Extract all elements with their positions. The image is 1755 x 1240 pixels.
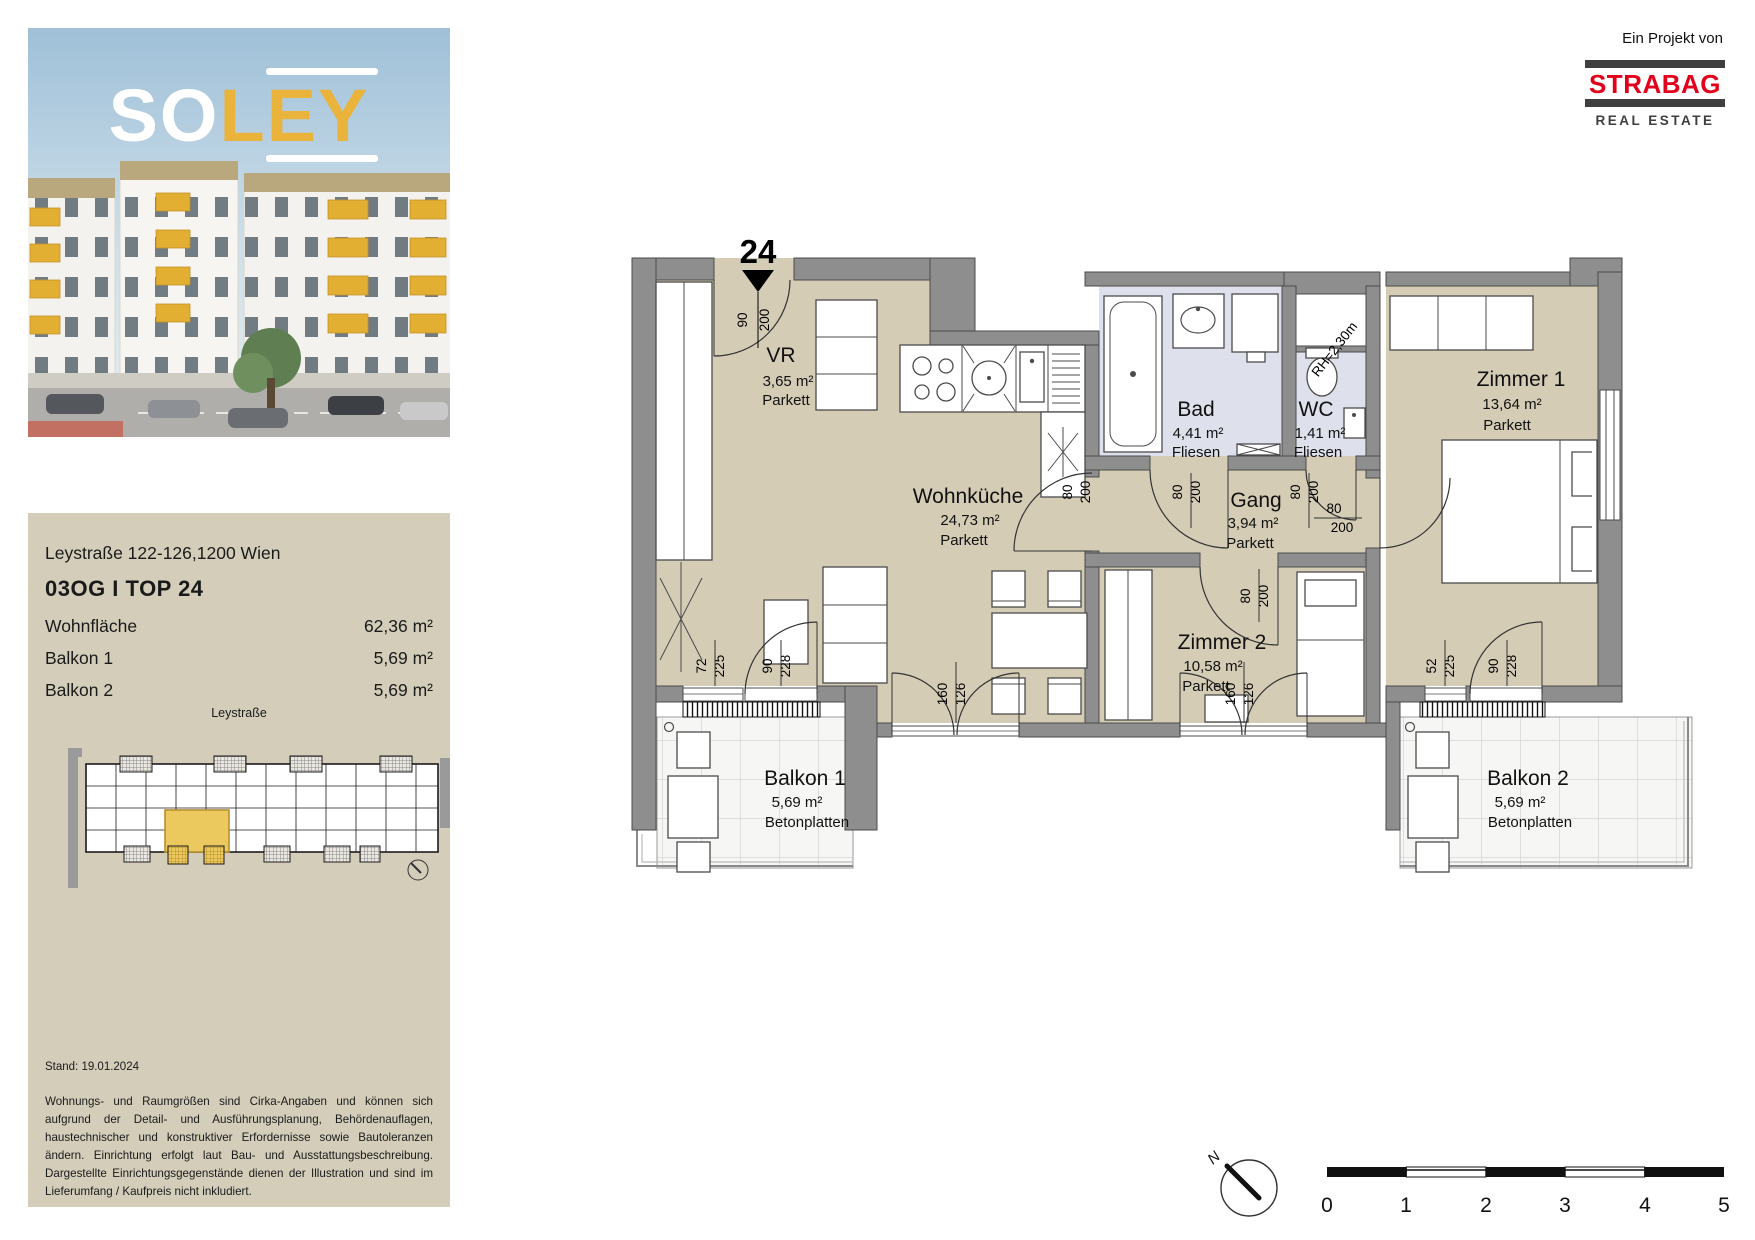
svg-text:Balkon 2: Balkon 2 — [1487, 767, 1569, 790]
svg-text:72: 72 — [694, 658, 709, 673]
svg-text:225: 225 — [1442, 655, 1457, 678]
svg-text:0: 0 — [1321, 1194, 1333, 1217]
svg-text:13,64 m²: 13,64 m² — [1482, 396, 1541, 413]
svg-text:Fliesen: Fliesen — [1172, 444, 1220, 461]
z1-wardrobe — [1390, 296, 1533, 350]
svg-text:200: 200 — [1078, 481, 1093, 504]
chair — [1048, 678, 1081, 714]
svg-text:4,41 m²: 4,41 m² — [1173, 425, 1224, 442]
svg-text:160: 160 — [1223, 683, 1238, 706]
balkon1-threshold — [683, 702, 820, 717]
scale-bar: 0 1 2 3 4 5 — [1321, 1167, 1730, 1217]
svg-text:3,94 m²: 3,94 m² — [1228, 515, 1279, 532]
svg-text:Wohnküche: Wohnküche — [913, 485, 1024, 508]
svg-text:1: 1 — [1400, 1194, 1412, 1217]
svg-text:52: 52 — [1424, 658, 1439, 673]
bad-radiator — [1237, 444, 1280, 455]
svg-text:4: 4 — [1639, 1194, 1651, 1217]
svg-text:228: 228 — [778, 655, 793, 678]
svg-text:2: 2 — [1480, 1194, 1492, 1217]
svg-text:80: 80 — [1238, 588, 1253, 603]
svg-text:90: 90 — [735, 312, 750, 327]
washing-machine — [1232, 294, 1278, 362]
svg-text:90: 90 — [1486, 658, 1501, 673]
svg-text:80: 80 — [1060, 484, 1075, 499]
svg-text:80: 80 — [1170, 484, 1185, 499]
svg-text:Gang: Gang — [1230, 489, 1281, 512]
svg-text:VR: VR — [766, 344, 795, 367]
bathtub — [1104, 296, 1162, 452]
armchair — [764, 600, 808, 664]
svg-text:Parkett: Parkett — [940, 532, 988, 549]
svg-text:10,58 m²: 10,58 m² — [1183, 658, 1242, 675]
svg-text:Betonplatten: Betonplatten — [765, 814, 849, 831]
svg-text:Bad: Bad — [1177, 398, 1214, 421]
balcony-tiles — [637, 717, 1692, 868]
svg-text:Balkon 1: Balkon 1 — [764, 767, 846, 790]
svg-text:200: 200 — [1256, 585, 1271, 608]
svg-text:80: 80 — [1326, 501, 1341, 516]
wc-basin — [1344, 408, 1365, 438]
chair — [1048, 571, 1081, 607]
svg-text:126: 126 — [1241, 683, 1256, 706]
vr-closet — [816, 300, 877, 410]
svg-text:225: 225 — [712, 655, 727, 678]
svg-text:200: 200 — [1306, 481, 1321, 504]
room-label-gang: Gang 3,94 m² Parkett — [1226, 489, 1281, 552]
north-arrow-icon: N — [1204, 1148, 1277, 1216]
svg-text:200: 200 — [757, 309, 772, 332]
svg-text:160: 160 — [935, 683, 950, 706]
chair — [992, 678, 1025, 714]
svg-text:Fliesen: Fliesen — [1294, 444, 1342, 461]
svg-text:200: 200 — [1331, 520, 1354, 535]
svg-text:228: 228 — [1504, 655, 1519, 678]
svg-text:Zimmer 2: Zimmer 2 — [1178, 631, 1267, 654]
chair — [992, 571, 1025, 607]
page: SOLEY Leystraße 122-126,1200 Wien 03OG I… — [0, 0, 1755, 1240]
svg-text:90: 90 — [760, 658, 775, 673]
double-bed — [1442, 440, 1597, 583]
balkon2-threshold — [1420, 702, 1545, 717]
svg-text:3,65 m²: 3,65 m² — [763, 373, 814, 390]
washbasin — [1173, 294, 1224, 348]
svg-text:126: 126 — [953, 683, 968, 706]
floor-plan: 24 VR 3,65 m² Parkett Wohnküche 24,73 m²… — [0, 0, 1755, 1240]
dining-table — [992, 613, 1087, 668]
svg-text:Betonplatten: Betonplatten — [1488, 814, 1572, 831]
svg-text:5: 5 — [1718, 1194, 1730, 1217]
svg-text:Parkett: Parkett — [762, 392, 810, 409]
svg-text:3: 3 — [1559, 1194, 1571, 1217]
svg-text:24,73 m²: 24,73 m² — [940, 512, 999, 529]
svg-text:Zimmer 1: Zimmer 1 — [1477, 368, 1566, 391]
svg-text:Parkett: Parkett — [1226, 535, 1274, 552]
svg-text:1,41 m²: 1,41 m² — [1295, 425, 1346, 442]
svg-text:200: 200 — [1188, 481, 1203, 504]
svg-text:5,69 m²: 5,69 m² — [772, 794, 823, 811]
north-label: N — [1204, 1148, 1224, 1168]
svg-text:Parkett: Parkett — [1483, 417, 1531, 434]
sofa — [823, 567, 887, 683]
svg-text:5,69 m²: 5,69 m² — [1495, 794, 1546, 811]
unit-number: 24 — [740, 233, 777, 270]
svg-text:WC: WC — [1299, 398, 1334, 421]
svg-text:80: 80 — [1288, 484, 1303, 499]
